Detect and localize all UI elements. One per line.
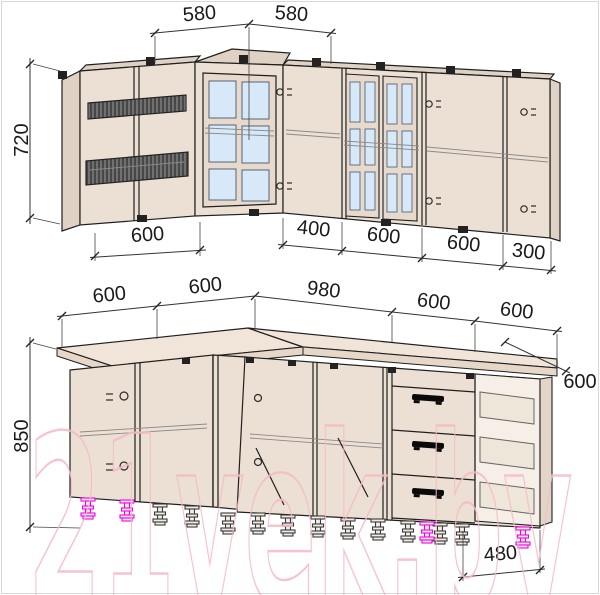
dim-upper-top-2: 580 bbox=[274, 2, 309, 26]
kitchen-dimension-drawing: 720 580 580 600 400 600 600 300 850 600 … bbox=[0, 0, 600, 595]
watermark: 21vek.by bbox=[28, 387, 573, 595]
upper-cabinet-faces bbox=[80, 62, 550, 238]
dim-base-top-4: 600 bbox=[416, 289, 452, 315]
dim-base-top-5: 600 bbox=[499, 298, 535, 324]
dim-upper-bottom-3: 600 bbox=[366, 223, 401, 248]
upper-cabinets-drawing bbox=[58, 49, 560, 241]
corner-glass-door bbox=[203, 73, 276, 207]
dim-upper-bottom-5: 300 bbox=[511, 239, 546, 264]
dim-upper-top-1: 580 bbox=[182, 2, 217, 27]
dim-base-top-3: 980 bbox=[306, 277, 342, 303]
dim-base-top-2: 600 bbox=[188, 273, 223, 298]
wall-cabinet-dishrack bbox=[80, 62, 195, 225]
dim-upper-bottom-1: 600 bbox=[130, 223, 165, 247]
drawing-svg: 720 580 580 600 400 600 600 300 850 600 … bbox=[0, 0, 600, 595]
dim-upper-bottom-4: 600 bbox=[446, 231, 481, 256]
dim-upper-height: 720 bbox=[11, 123, 33, 156]
dim-base-top-1: 600 bbox=[92, 282, 127, 307]
dim-upper-bottom-2: 400 bbox=[296, 216, 331, 241]
